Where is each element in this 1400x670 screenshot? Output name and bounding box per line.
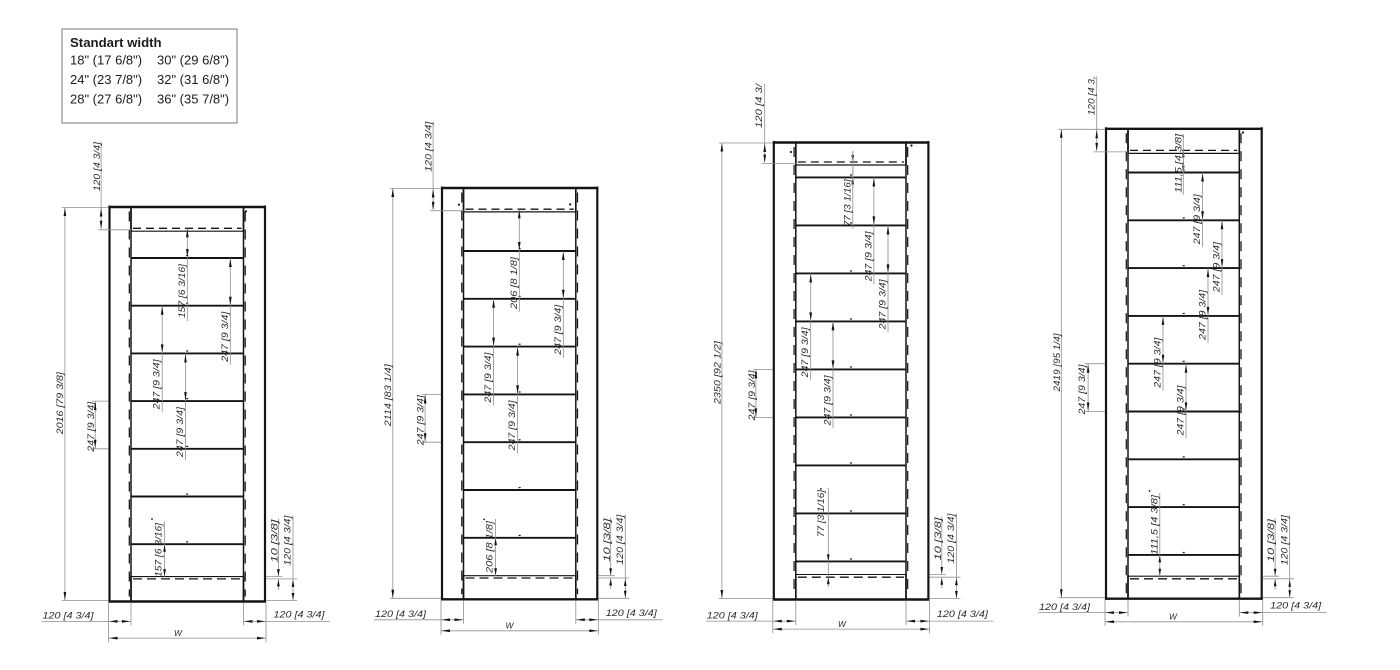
svg-text:2016 [79 3/8]: 2016 [79 3/8]: [55, 372, 65, 436]
svg-text:18" (17 6/8"): 18" (17 6/8"): [70, 53, 142, 68]
svg-text:247 [9 3/4]: 247 [9 3/4]: [1198, 289, 1208, 341]
svg-text:247 [9 3/4]: 247 [9 3/4]: [1176, 385, 1186, 437]
svg-text:247 [9 3/4]: 247 [9 3/4]: [800, 327, 810, 379]
svg-text:120 [4 3/4]: 120 [4 3/4]: [424, 121, 434, 172]
svg-text:247 [9 3/4]: 247 [9 3/4]: [1212, 242, 1222, 294]
svg-text:247 [9 3/4]: 247 [9 3/4]: [1192, 194, 1202, 246]
svg-text:120 [4 3/4]: 120 [4 3/4]: [606, 608, 658, 618]
svg-text:111,5 [4 3/8]: 111,5 [4 3/8]: [1174, 133, 1184, 193]
svg-text:120 [4 3/: 120 [4 3/: [754, 82, 764, 128]
svg-text:120 [4 3/4]: 120 [4 3/4]: [92, 142, 102, 192]
svg-text:W: W: [174, 628, 183, 638]
svg-text:30" (29 6/8"): 30" (29 6/8"): [157, 53, 229, 68]
svg-text:77 [3 1/16]: 77 [3 1/16]: [816, 489, 826, 537]
svg-text:120 [4 3/4]: 120 [4 3/4]: [283, 515, 293, 566]
svg-text:28" (27 6/8"): 28" (27 6/8"): [70, 92, 142, 107]
svg-text:120 [4 3/4]: 120 [4 3/4]: [274, 609, 326, 619]
svg-text:W: W: [1169, 612, 1178, 622]
svg-text:10 [3/8]: 10 [3/8]: [270, 519, 280, 563]
svg-text:120 [4 3,: 120 [4 3,: [1087, 76, 1097, 115]
svg-text:77 [3 1/16]: 77 [3 1/16]: [843, 179, 853, 227]
svg-text:247 [9 3/4]: 247 [9 3/4]: [507, 400, 517, 452]
svg-text:10 [3/8]: 10 [3/8]: [602, 518, 612, 562]
svg-text:111,5 [4 3/8]: 111,5 [4 3/8]: [1150, 494, 1160, 555]
svg-text:2419 [95 1/4]: 2419 [95 1/4]: [1052, 333, 1062, 393]
svg-text:247 [9 3/4]: 247 [9 3/4]: [220, 311, 230, 363]
svg-text:Standart width: Standart width: [70, 35, 162, 50]
svg-text:247 [9 3/4]: 247 [9 3/4]: [553, 304, 563, 356]
svg-text:36" (35 7/8"): 36" (35 7/8"): [157, 92, 229, 107]
svg-text:247 [9 3/4]: 247 [9 3/4]: [152, 359, 162, 411]
svg-text:120 [4 3/4]: 120 [4 3/4]: [1279, 515, 1289, 566]
svg-text:32" (31 6/8"): 32" (31 6/8"): [157, 72, 229, 87]
svg-text:120 [4 3/4]: 120 [4 3/4]: [1039, 602, 1091, 612]
svg-text:157 [6 3/16]: 157 [6 3/16]: [177, 263, 187, 318]
svg-text:247 [9 3/4]: 247 [9 3/4]: [483, 352, 493, 404]
svg-text:120 [4 3/4]: 120 [4 3/4]: [375, 609, 427, 619]
svg-text:206 [8 1/8]: 206 [8 1/8]: [509, 256, 519, 310]
svg-text:247 [9 3/4]: 247 [9 3/4]: [86, 401, 96, 453]
svg-text:120 [4 3/4]: 120 [4 3/4]: [615, 514, 625, 565]
svg-text:120 [4 3/4]: 120 [4 3/4]: [946, 513, 956, 564]
svg-text:24" (23 7/8"): 24" (23 7/8"): [70, 72, 142, 87]
svg-text:247 [9 3/4]: 247 [9 3/4]: [823, 375, 833, 427]
svg-text:2114 [83 1/4]: 2114 [83 1/4]: [383, 364, 393, 428]
svg-text:120 [4 3/4]: 120 [4 3/4]: [43, 611, 95, 621]
svg-text:247 [9 3/4]: 247 [9 3/4]: [416, 395, 426, 447]
svg-text:2350 [92 1/2]: 2350 [92 1/2]: [713, 341, 723, 406]
svg-text:247 [9 3/4]: 247 [9 3/4]: [175, 407, 185, 459]
svg-text:10 [3/8]: 10 [3/8]: [933, 517, 943, 561]
svg-text:247 [9 3/4]: 247 [9 3/4]: [747, 370, 757, 422]
svg-text:120 [4 3/4]: 120 [4 3/4]: [1270, 601, 1322, 611]
svg-text:247 [9 3/4]: 247 [9 3/4]: [1077, 364, 1087, 416]
svg-text:W: W: [838, 619, 847, 629]
svg-text:157 [6 3/16]: 157 [6 3/16]: [154, 522, 164, 577]
svg-text:247 [9 3/4]: 247 [9 3/4]: [1153, 337, 1163, 389]
svg-text:206 [8 1/8]: 206 [8 1/8]: [485, 520, 495, 574]
svg-text:10 [3/8]: 10 [3/8]: [1266, 519, 1276, 563]
svg-text:247 [9 3/4]: 247 [9 3/4]: [878, 279, 888, 331]
svg-text:120 [4 3/4]: 120 [4 3/4]: [707, 610, 759, 620]
svg-text:247 [9 3/4]: 247 [9 3/4]: [863, 231, 873, 283]
svg-text:120 [4 3/4]: 120 [4 3/4]: [937, 609, 989, 619]
svg-text:W: W: [506, 621, 515, 631]
